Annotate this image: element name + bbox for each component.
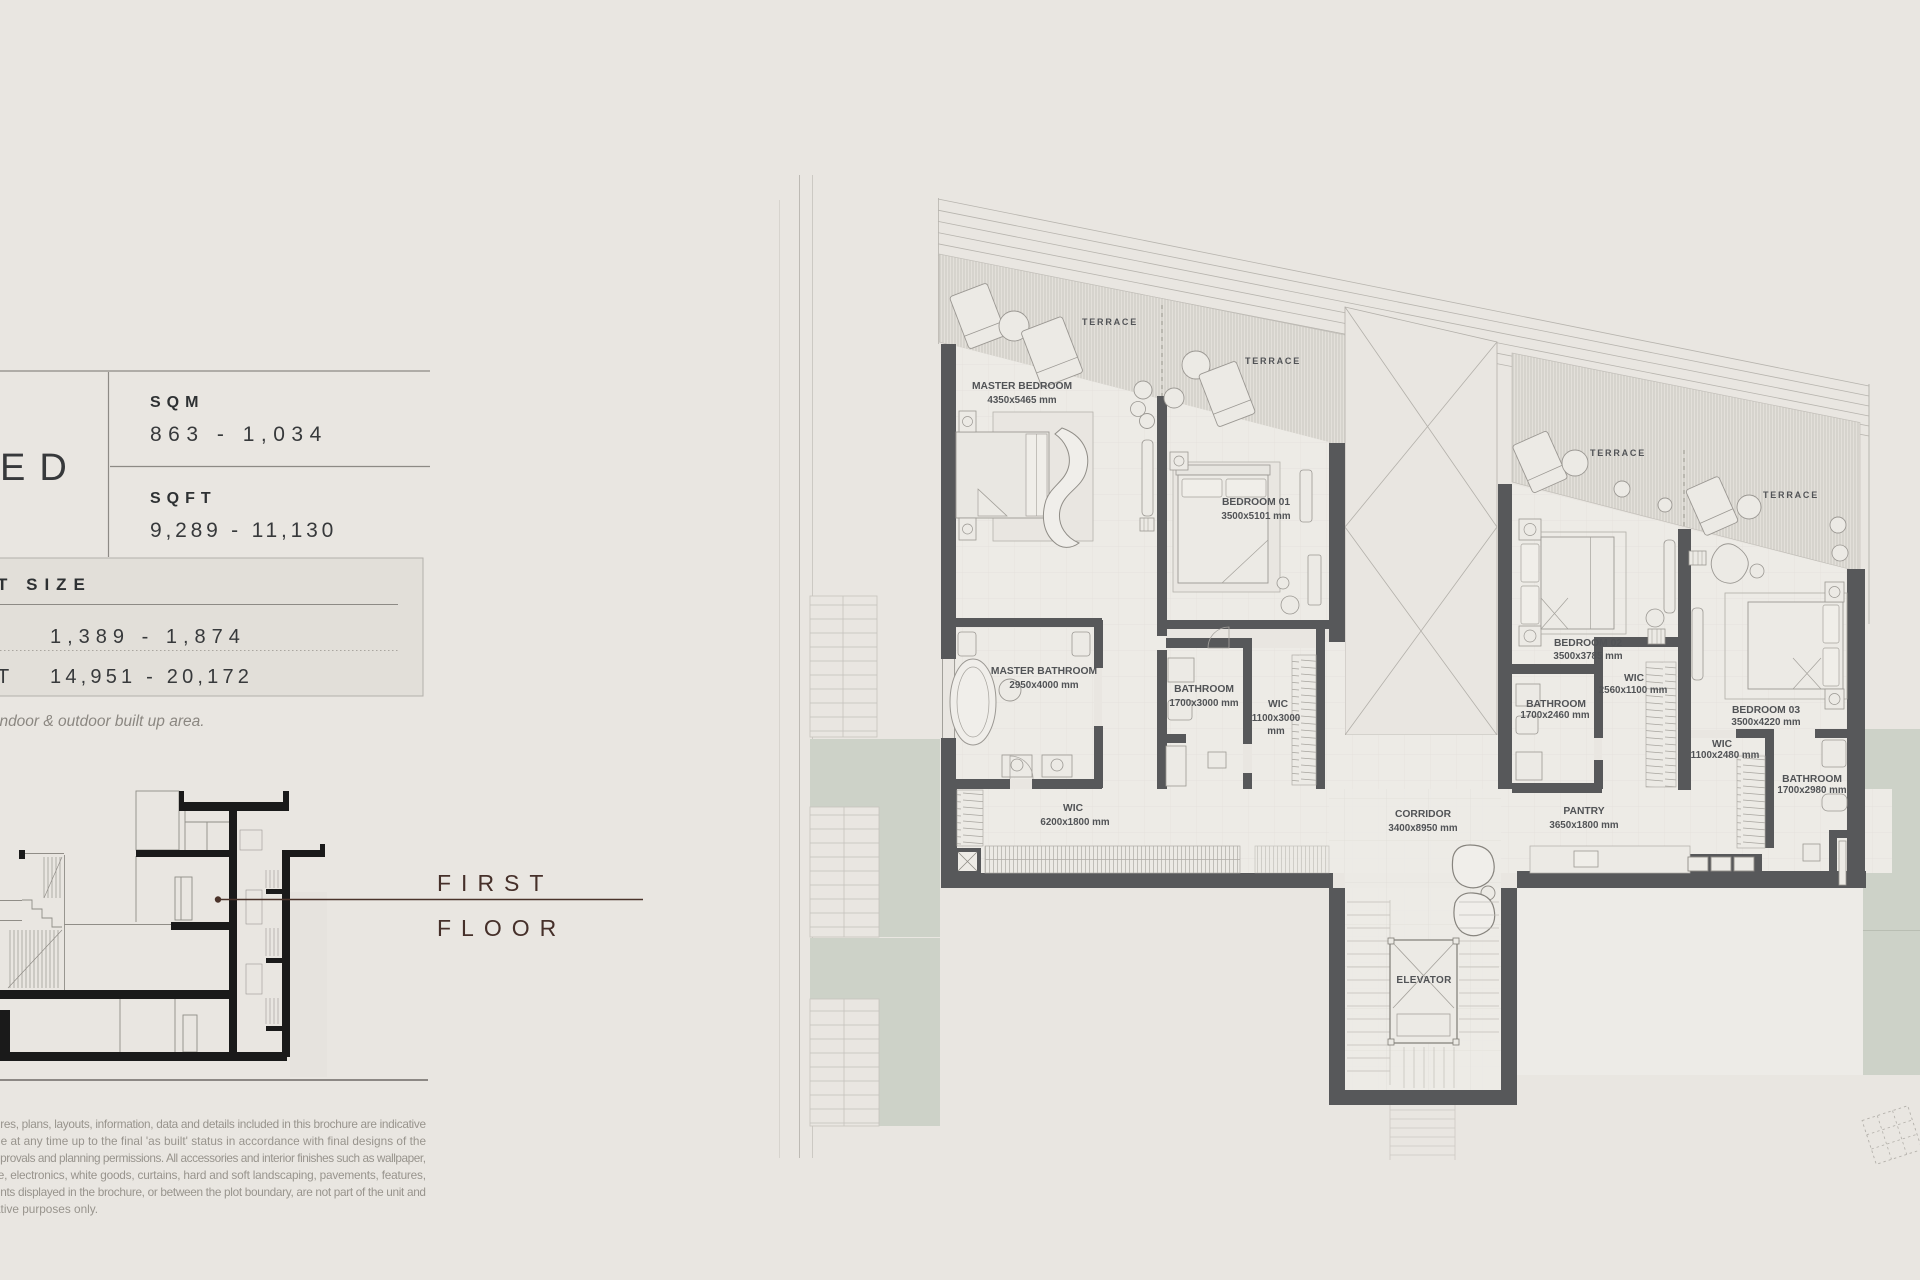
svg-text:PANTRY: PANTRY	[1563, 806, 1604, 817]
svg-text:BEDROOM 03: BEDROOM 03	[1732, 705, 1800, 716]
svg-text:ents displayed in the brochure: ents displayed in the brochure, or betwe…	[0, 1185, 426, 1199]
svg-text:FLOOR: FLOOR	[437, 915, 566, 941]
svg-text:ures, plans, layouts, informat: ures, plans, layouts, information, data …	[0, 1117, 426, 1131]
svg-text:WIC: WIC	[1624, 673, 1645, 684]
svg-text:WIC: WIC	[1712, 739, 1733, 750]
svg-text:1700x3000 mm: 1700x3000 mm	[1169, 698, 1238, 709]
svg-text:SQFT: SQFT	[150, 490, 217, 507]
svg-text:SQM: SQM	[150, 394, 204, 411]
svg-text:pprovals and planning permissi: pprovals and planning permissions. All a…	[0, 1151, 426, 1165]
svg-text:WIC: WIC	[1063, 803, 1084, 814]
svg-text:TERRACE: TERRACE	[1082, 317, 1138, 327]
svg-text:mm: mm	[1267, 726, 1285, 737]
svg-text:1,389 - 1,874: 1,389 - 1,874	[50, 626, 246, 648]
svg-text:9,289 - 11,130: 9,289 - 11,130	[150, 519, 337, 542]
svg-text:ED: ED	[0, 447, 81, 489]
svg-text:863 - 1,034: 863 - 1,034	[150, 423, 328, 446]
svg-text:2950x4000 mm: 2950x4000 mm	[1009, 680, 1078, 691]
svg-text:14,951 - 20,172: 14,951 - 20,172	[50, 666, 253, 688]
svg-text:TERRACE: TERRACE	[1763, 490, 1819, 500]
svg-text:2560x1100 mm: 2560x1100 mm	[1599, 685, 1668, 696]
svg-text:ELEVATOR: ELEVATOR	[1396, 975, 1452, 986]
svg-text:TERRACE: TERRACE	[1590, 448, 1646, 458]
svg-text:ative purposes only.: ative purposes only.	[0, 1202, 98, 1216]
svg-text:BATHROOM: BATHROOM	[1526, 699, 1586, 710]
svg-text:re, electronics, white goods,: re, electronics, white goods, curtains, …	[0, 1168, 426, 1182]
svg-text:T: T	[0, 666, 15, 688]
svg-text:3400x8950 mm: 3400x8950 mm	[1388, 823, 1457, 834]
svg-text:indoor & outdoor built up area: indoor & outdoor built up area.	[0, 713, 205, 730]
svg-text:BATHROOM: BATHROOM	[1174, 684, 1234, 695]
svg-text:BEDROOM 01: BEDROOM 01	[1222, 497, 1290, 508]
svg-text:CORRIDOR: CORRIDOR	[1395, 809, 1452, 820]
svg-text:TERRACE: TERRACE	[1245, 356, 1301, 366]
svg-text:MASTER BEDROOM: MASTER BEDROOM	[972, 381, 1072, 392]
svg-text:3500x5101 mm: 3500x5101 mm	[1221, 511, 1290, 522]
svg-text:1700x2460 mm: 1700x2460 mm	[1520, 710, 1589, 721]
svg-text:BEDROOM 02: BEDROOM 02	[1554, 638, 1622, 649]
svg-text:1100x2480 mm: 1100x2480 mm	[1691, 750, 1760, 761]
svg-text:FIRST: FIRST	[437, 870, 553, 896]
svg-text:T SIZE: T SIZE	[0, 575, 92, 594]
svg-text:WIC: WIC	[1268, 699, 1289, 710]
svg-text:MASTER BATHROOM: MASTER BATHROOM	[991, 666, 1097, 677]
svg-text:6200x1800 mm: 6200x1800 mm	[1040, 817, 1109, 828]
svg-text:3500x3785 mm: 3500x3785 mm	[1553, 651, 1622, 662]
svg-text:BATHROOM: BATHROOM	[1782, 774, 1842, 785]
svg-text:1700x2980 mm: 1700x2980 mm	[1777, 785, 1846, 796]
svg-text:4350x5465 mm: 4350x5465 mm	[987, 395, 1056, 406]
svg-text:ge at any time up to the final: ge at any time up to the final 'as built…	[0, 1134, 426, 1148]
svg-text:3650x1800 mm: 3650x1800 mm	[1549, 820, 1618, 831]
svg-text:3500x4220 mm: 3500x4220 mm	[1731, 717, 1800, 728]
svg-text:1100x3000: 1100x3000	[1252, 713, 1301, 724]
